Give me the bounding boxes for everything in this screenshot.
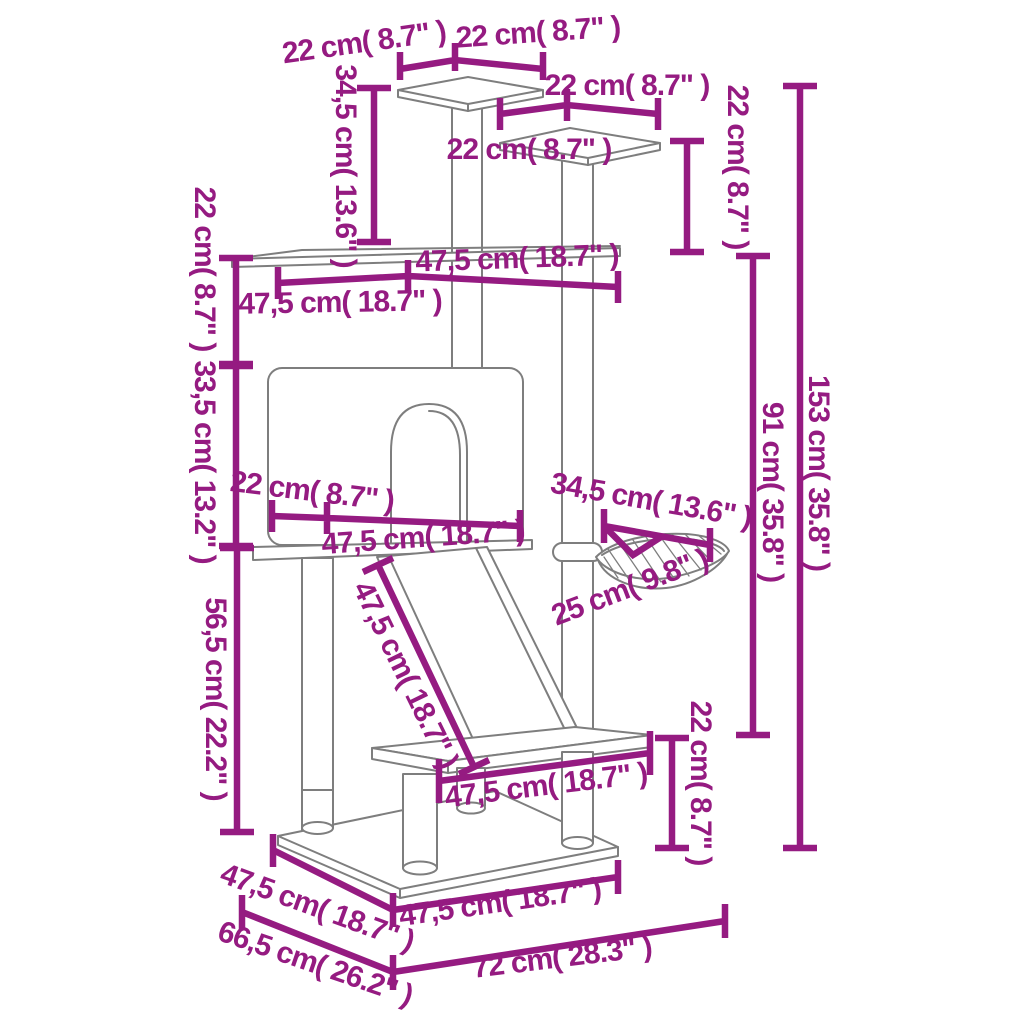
dim-label-upper-perch-depth: 22 cm( 8.7" ) — [447, 135, 612, 165]
dim-label-condo-height: 33,5 cm( 13.2" ) — [189, 360, 219, 563]
hammock-clamp — [553, 543, 602, 561]
dim-label-91-height: 91 cm( 35.8" ) — [757, 402, 787, 582]
dim-label-gap-above-condo: 22 cm( 8.7" ) — [189, 187, 219, 352]
dim-label-base-height: 22 cm( 8.7" ) — [685, 701, 715, 866]
dim-label-lower-height: 56,5 cm( 22.2" ) — [200, 597, 230, 800]
top-perch — [398, 77, 543, 111]
dim-label-main-platform-depth: 47,5 cm( 18.7" ) — [238, 286, 442, 320]
dim-label-total-height: 153 cm( 35.8" ) — [803, 375, 833, 571]
dim-line-upper-perch-height — [670, 141, 704, 252]
dim-line-top-post-height — [357, 88, 391, 242]
dimension-diagram: 22 cm( 8.7" ) 22 cm( 8.7" ) 22 cm( 8.7" … — [0, 0, 1024, 1024]
dim-label-top-post-height: 34,5 cm( 13.6" ) — [330, 64, 360, 267]
dim-label-main-platform-width: 47,5 cm( 18.7" ) — [415, 240, 619, 277]
dim-line-condo-height — [219, 366, 253, 546]
dim-label-upper-perch-height: 22 cm( 8.7" ) — [722, 85, 752, 250]
dim-label-upper-perch-width: 22 cm( 8.7" ) — [545, 71, 710, 101]
